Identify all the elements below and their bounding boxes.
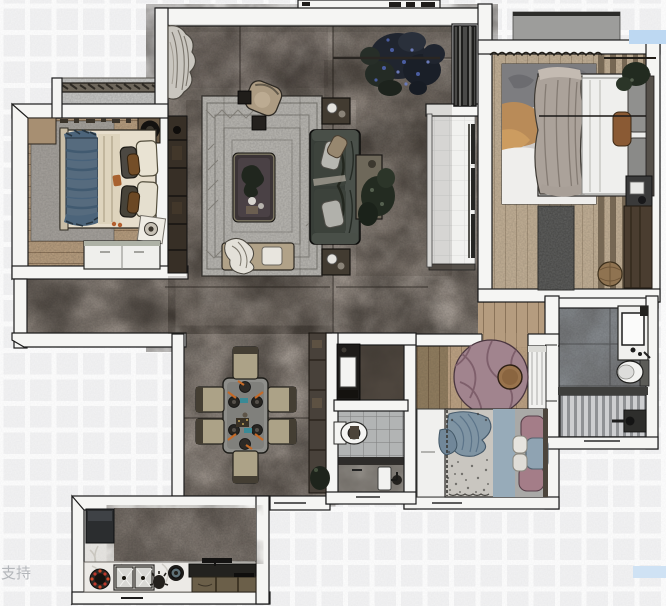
svg-text:支持: 支持 bbox=[1, 565, 31, 582]
